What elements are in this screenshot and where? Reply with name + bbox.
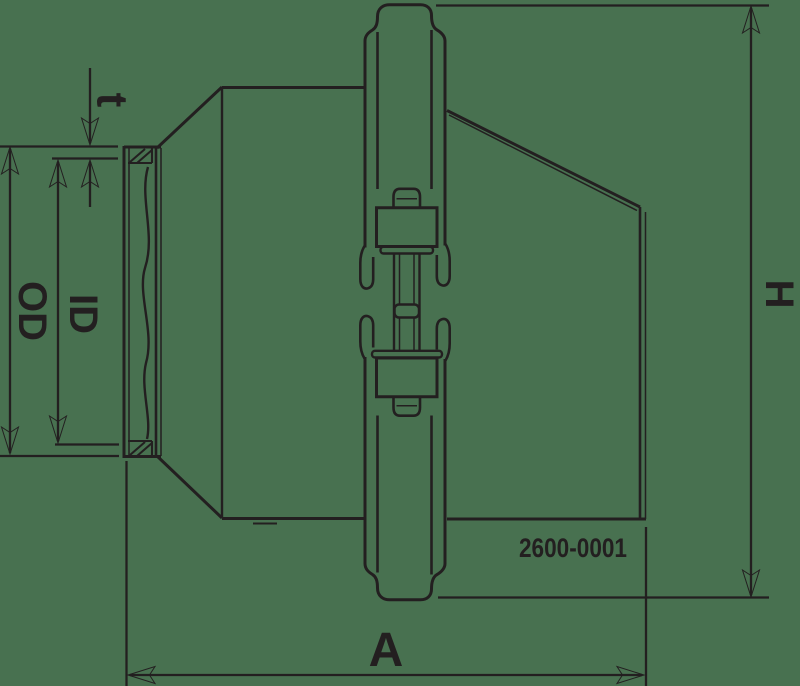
technical-drawing-canvas: t OD ID H A 2600-0001 (0, 0, 800, 686)
dim-id: ID (50, 160, 120, 445)
h-label: H (757, 280, 800, 309)
body-cylinder (222, 88, 364, 524)
od-label: OD (10, 281, 54, 341)
dim-a: A (127, 461, 647, 686)
left-cone (157, 87, 222, 518)
t-label: t (88, 93, 137, 108)
t-bolt (372, 247, 442, 358)
dim-h: H (436, 6, 800, 598)
right-cone (447, 111, 646, 520)
left-flange (124, 146, 161, 458)
id-label: ID (61, 294, 105, 334)
clamp-assembly (360, 5, 449, 600)
corrugation-wave (143, 167, 149, 439)
flange-hatch-bottom (128, 441, 152, 456)
part-number-label: 2600-0001 (519, 533, 627, 563)
t-bolt-nut (395, 305, 420, 318)
a-label: A (369, 624, 404, 677)
dim-t: t (0, 68, 137, 207)
flange-hatch-top (128, 148, 152, 163)
technical-drawing-page: t OD ID H A 2600-0001 (0, 0, 800, 686)
